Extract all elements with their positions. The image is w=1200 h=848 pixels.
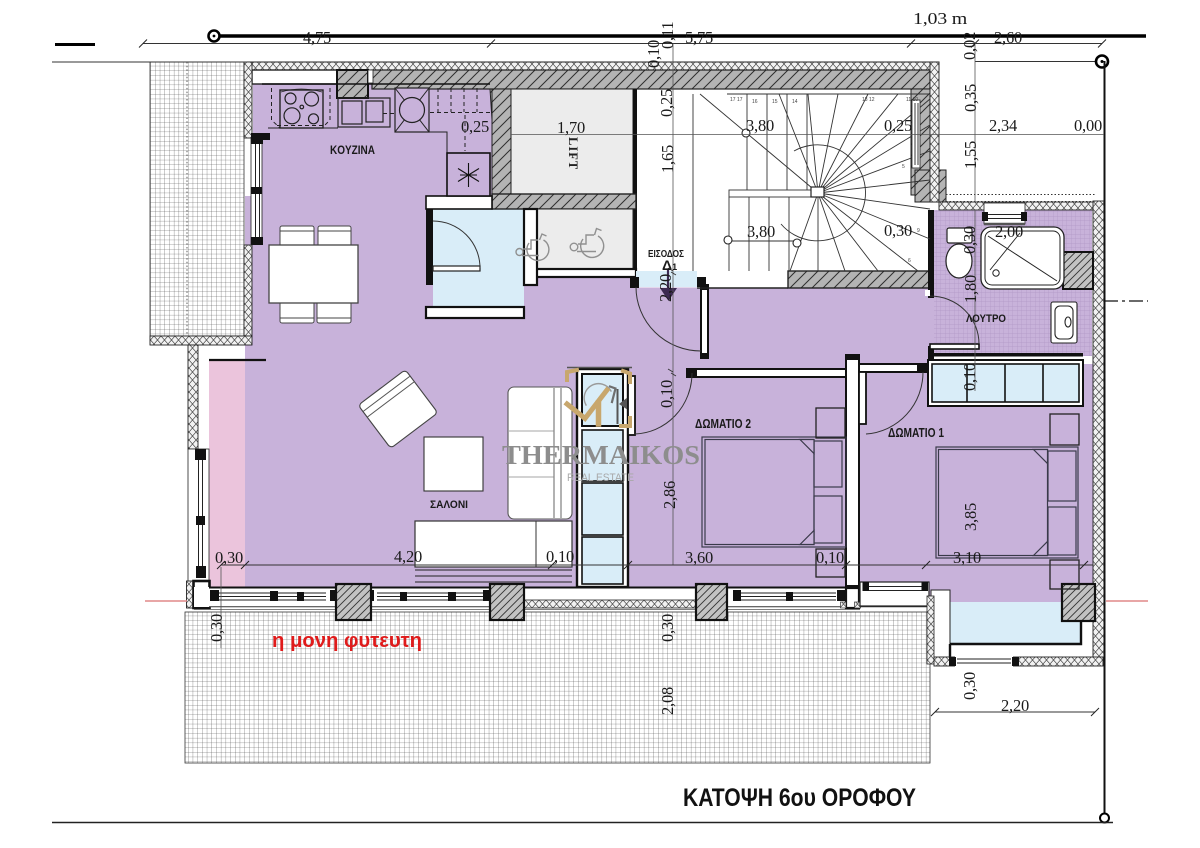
svg-text:2,34: 2,34 xyxy=(989,116,1017,135)
svg-text:2,00: 2,00 xyxy=(995,222,1023,241)
svg-text:REAL ESTATE: REAL ESTATE xyxy=(567,472,634,484)
svg-text:0,30: 0,30 xyxy=(884,221,912,240)
svg-text:17 17: 17 17 xyxy=(730,97,743,103)
svg-text:0,30: 0,30 xyxy=(960,226,979,254)
svg-text:3,80: 3,80 xyxy=(746,116,774,135)
svg-text:LIFT: LIFT xyxy=(566,137,580,170)
svg-text:0,00: 0,00 xyxy=(1074,116,1102,135)
svg-text:0,30: 0,30 xyxy=(658,614,677,642)
svg-text:0,02: 0,02 xyxy=(960,32,979,60)
svg-text:ΔΩΜΑΤΙΟ 2: ΔΩΜΑΤΙΟ 2 xyxy=(695,417,751,431)
svg-text:4,20: 4,20 xyxy=(394,547,422,566)
svg-text:0,25: 0,25 xyxy=(461,117,489,136)
svg-text:0,25: 0,25 xyxy=(884,116,912,135)
svg-text:0,35: 0,35 xyxy=(961,84,980,112)
svg-text:2,60: 2,60 xyxy=(994,28,1022,47)
svg-text:0,30: 0,30 xyxy=(960,672,979,700)
svg-text:1,03 m: 1,03 m xyxy=(913,9,967,28)
svg-text:11 10: 11 10 xyxy=(906,97,918,103)
svg-text:1,70: 1,70 xyxy=(557,118,585,137)
svg-text:0,10: 0,10 xyxy=(546,547,574,566)
svg-text:16: 16 xyxy=(752,99,758,105)
svg-text:0,30: 0,30 xyxy=(215,548,243,567)
svg-text:9: 9 xyxy=(917,228,920,234)
svg-text:2,08: 2,08 xyxy=(658,687,677,715)
svg-text:ΣΑΛΟΝΙ: ΣΑΛΟΝΙ xyxy=(430,499,468,511)
svg-text:3,80: 3,80 xyxy=(747,222,775,241)
svg-text:ΛΟΥΤΡΟ: ΛΟΥΤΡΟ xyxy=(966,313,1006,325)
svg-text:0,10: 0,10 xyxy=(960,363,979,391)
svg-text:1,65: 1,65 xyxy=(658,145,677,173)
svg-text:THERMAIKOS: THERMAIKOS xyxy=(502,440,700,470)
svg-text:5: 5 xyxy=(902,164,905,170)
svg-text:6: 6 xyxy=(908,258,911,264)
svg-text:KOYZINA: KOYZINA xyxy=(330,145,375,157)
svg-text:ΔΩΜΑΤΙΟ 1: ΔΩΜΑΤΙΟ 1 xyxy=(888,426,944,440)
svg-text:0,10: 0,10 xyxy=(816,548,844,567)
svg-text:2,20: 2,20 xyxy=(656,274,675,302)
svg-text:0,10: 0,10 xyxy=(644,40,663,68)
svg-text:13 12: 13 12 xyxy=(862,97,875,103)
svg-text:2,86: 2,86 xyxy=(660,481,679,509)
svg-text:η μονη φυτευτη: η μονη φυτευτη xyxy=(272,630,422,652)
svg-text:2,20: 2,20 xyxy=(1001,696,1029,715)
svg-text:15: 15 xyxy=(772,99,778,105)
svg-text:5,75: 5,75 xyxy=(685,28,713,47)
svg-text:4,75: 4,75 xyxy=(303,28,331,47)
svg-text:14: 14 xyxy=(792,99,798,105)
svg-text:0,30: 0,30 xyxy=(207,614,226,642)
svg-text:ΚΑΤΟΨΗ 6ου ΟΡΟΦΟΥ: ΚΑΤΟΨΗ 6ου ΟΡΟΦΟΥ xyxy=(683,784,916,812)
svg-text:0,10: 0,10 xyxy=(657,380,676,408)
svg-text:0,25: 0,25 xyxy=(657,89,676,117)
svg-text:3,10: 3,10 xyxy=(953,548,981,567)
svg-text:3,60: 3,60 xyxy=(685,548,713,567)
svg-text:3,85: 3,85 xyxy=(961,503,980,531)
svg-text:1,80: 1,80 xyxy=(961,275,980,303)
svg-text:1,55: 1,55 xyxy=(961,141,980,169)
